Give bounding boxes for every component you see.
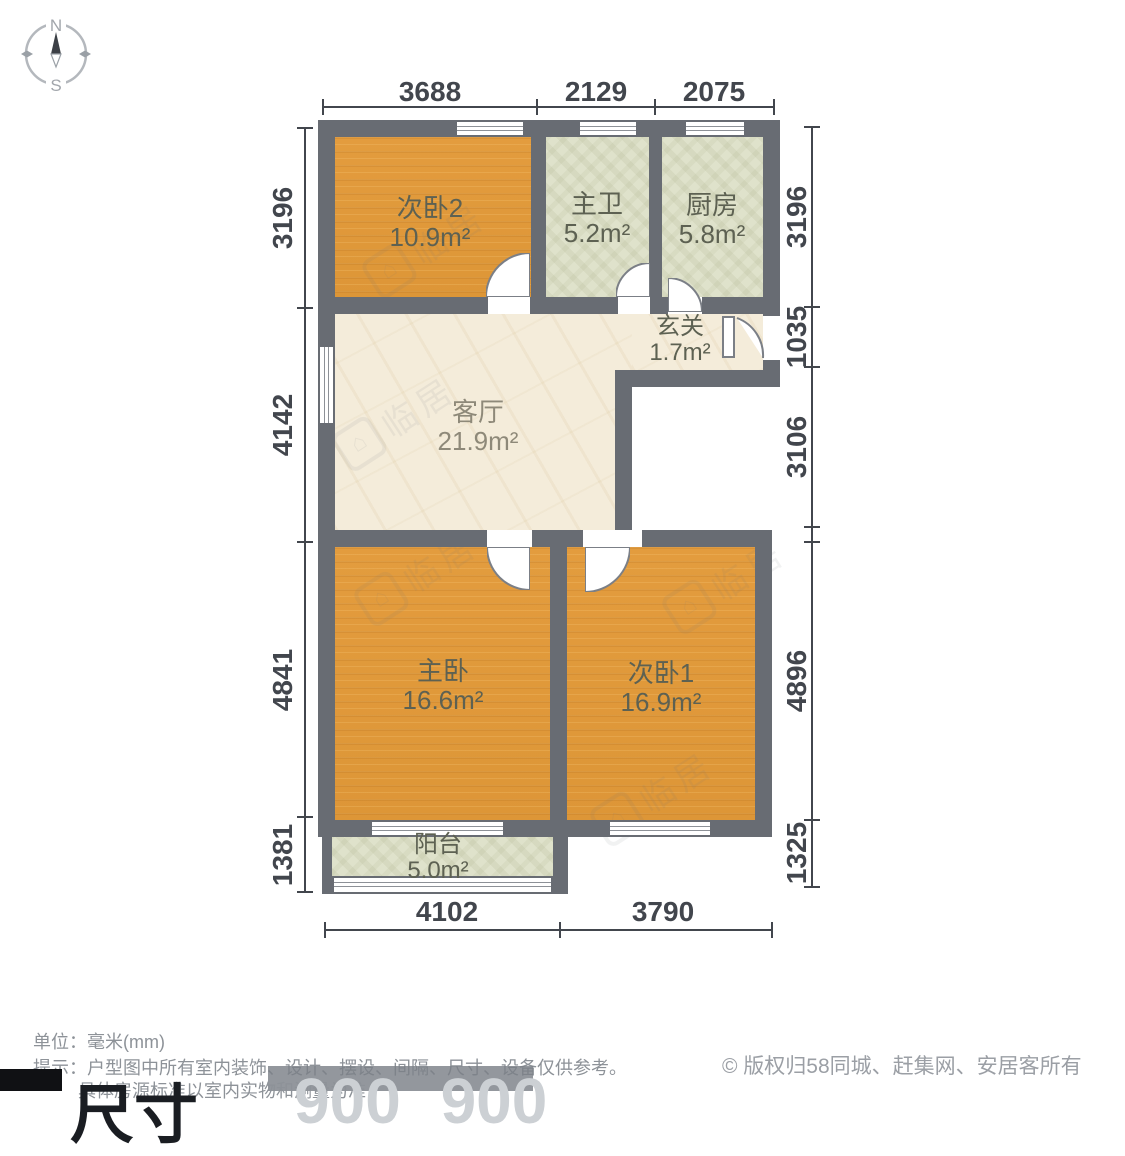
wall-outer-left <box>318 137 335 837</box>
wall-outer-right-lower <box>755 530 772 837</box>
dim-right-0: 3196 <box>781 186 813 248</box>
room-entry-label: 玄关1.7m² <box>649 314 710 366</box>
wall-mid-a <box>318 530 487 547</box>
wall-master-bedroom1 <box>550 547 567 820</box>
window-bathroom <box>578 120 638 137</box>
door-arc-bathroom <box>616 263 650 297</box>
dim-left-2: 4841 <box>267 649 299 711</box>
door-arc-kitchen <box>668 278 702 312</box>
dim-top-0: 3688 <box>399 76 461 108</box>
dim-right-2: 3106 <box>781 416 813 478</box>
window-living <box>318 345 335 425</box>
wall-living-right <box>615 387 632 530</box>
dim-tick <box>297 541 313 543</box>
window-bedroom1 <box>608 820 712 837</box>
wall-bottom-c <box>712 820 772 837</box>
dim-tick <box>804 526 820 528</box>
wall-entry-bottom <box>615 370 780 387</box>
room-bedroom2-label: 次卧210.9m² <box>390 194 471 252</box>
dim-right-4: 1325 <box>781 822 813 884</box>
dim-top-1: 2129 <box>565 76 627 108</box>
door-arc-bedroom2 <box>486 253 530 297</box>
room-kitchen-label: 厨房5.8m² <box>679 191 745 249</box>
wall-bathroom-kitchen <box>649 137 662 297</box>
dim-tick <box>297 891 313 893</box>
wall-outer-right-upper <box>763 137 780 316</box>
wall-balcony-left <box>322 837 332 894</box>
overlay-size-value: 900 900 <box>294 1064 547 1138</box>
wall-mid-b <box>532 530 583 547</box>
dim-tick <box>804 126 820 128</box>
dim-bottom-1: 3790 <box>632 896 694 928</box>
room-master-label: 主卧16.6m² <box>403 657 484 715</box>
dim-tick <box>297 127 313 129</box>
wall-top-rooms-a <box>318 297 488 314</box>
door-arc-master <box>487 547 530 590</box>
footer-unit-line: 单位：毫米(mm) <box>33 1028 165 1054</box>
dim-tick <box>297 816 313 818</box>
wall-bedroom2-bathroom <box>531 137 546 297</box>
dim-tick <box>804 819 820 821</box>
dim-line-bottom <box>325 929 773 931</box>
dim-tick <box>654 99 656 115</box>
room-bedroom1-label: 次卧116.9m² <box>621 659 702 717</box>
wall-top-rooms-d <box>702 297 780 314</box>
dim-left-1: 4142 <box>267 394 299 456</box>
compass-icon: N S <box>8 4 104 100</box>
dim-right-1: 1035 <box>781 306 813 368</box>
compass-north-label: N <box>50 16 62 35</box>
dim-tick <box>559 922 561 938</box>
overlay-size-label: 尺寸 <box>70 1064 198 1156</box>
floorplan-screenshot: { "compass": { "north_label": "N", "sout… <box>0 0 1125 1091</box>
dim-left-3: 1381 <box>267 824 299 886</box>
dim-left-0: 3196 <box>267 187 299 249</box>
room-living-label: 客厅21.9m² <box>438 398 519 456</box>
dim-bottom-0: 4102 <box>416 896 478 928</box>
wall-top-rooms-c <box>650 297 668 314</box>
dim-tick <box>804 541 820 543</box>
dim-tick <box>324 922 326 938</box>
copyright-text: © 版权归58同城、赶集网、安居客所有 <box>722 1050 1082 1080</box>
window-bedroom2 <box>455 120 525 137</box>
dim-top-2: 2075 <box>683 76 745 108</box>
wall-balcony-right <box>553 837 568 894</box>
room-bathroom-label: 主卫5.2m² <box>564 190 630 248</box>
overlay-black-square <box>0 1069 62 1091</box>
dim-tick <box>297 307 313 309</box>
window-kitchen <box>684 120 746 137</box>
dim-line-left <box>304 128 306 893</box>
dim-tick <box>771 922 773 938</box>
dim-tick <box>773 99 775 115</box>
wall-mid-c <box>642 530 772 547</box>
dim-tick <box>804 886 820 888</box>
door-leaf-entry <box>722 316 735 358</box>
dim-tick <box>536 99 538 115</box>
wall-bottom-a <box>318 820 370 837</box>
compass-south-label: S <box>50 76 61 95</box>
dim-right-3: 4896 <box>781 650 813 712</box>
door-arc-entry <box>735 316 765 360</box>
dim-tick <box>322 99 324 115</box>
wall-top-rooms-b <box>530 297 618 314</box>
room-balcony-label: 阳台5.0m² <box>407 832 468 884</box>
door-arc-bedroom1 <box>585 547 630 592</box>
wall-bottom-b <box>505 820 608 837</box>
